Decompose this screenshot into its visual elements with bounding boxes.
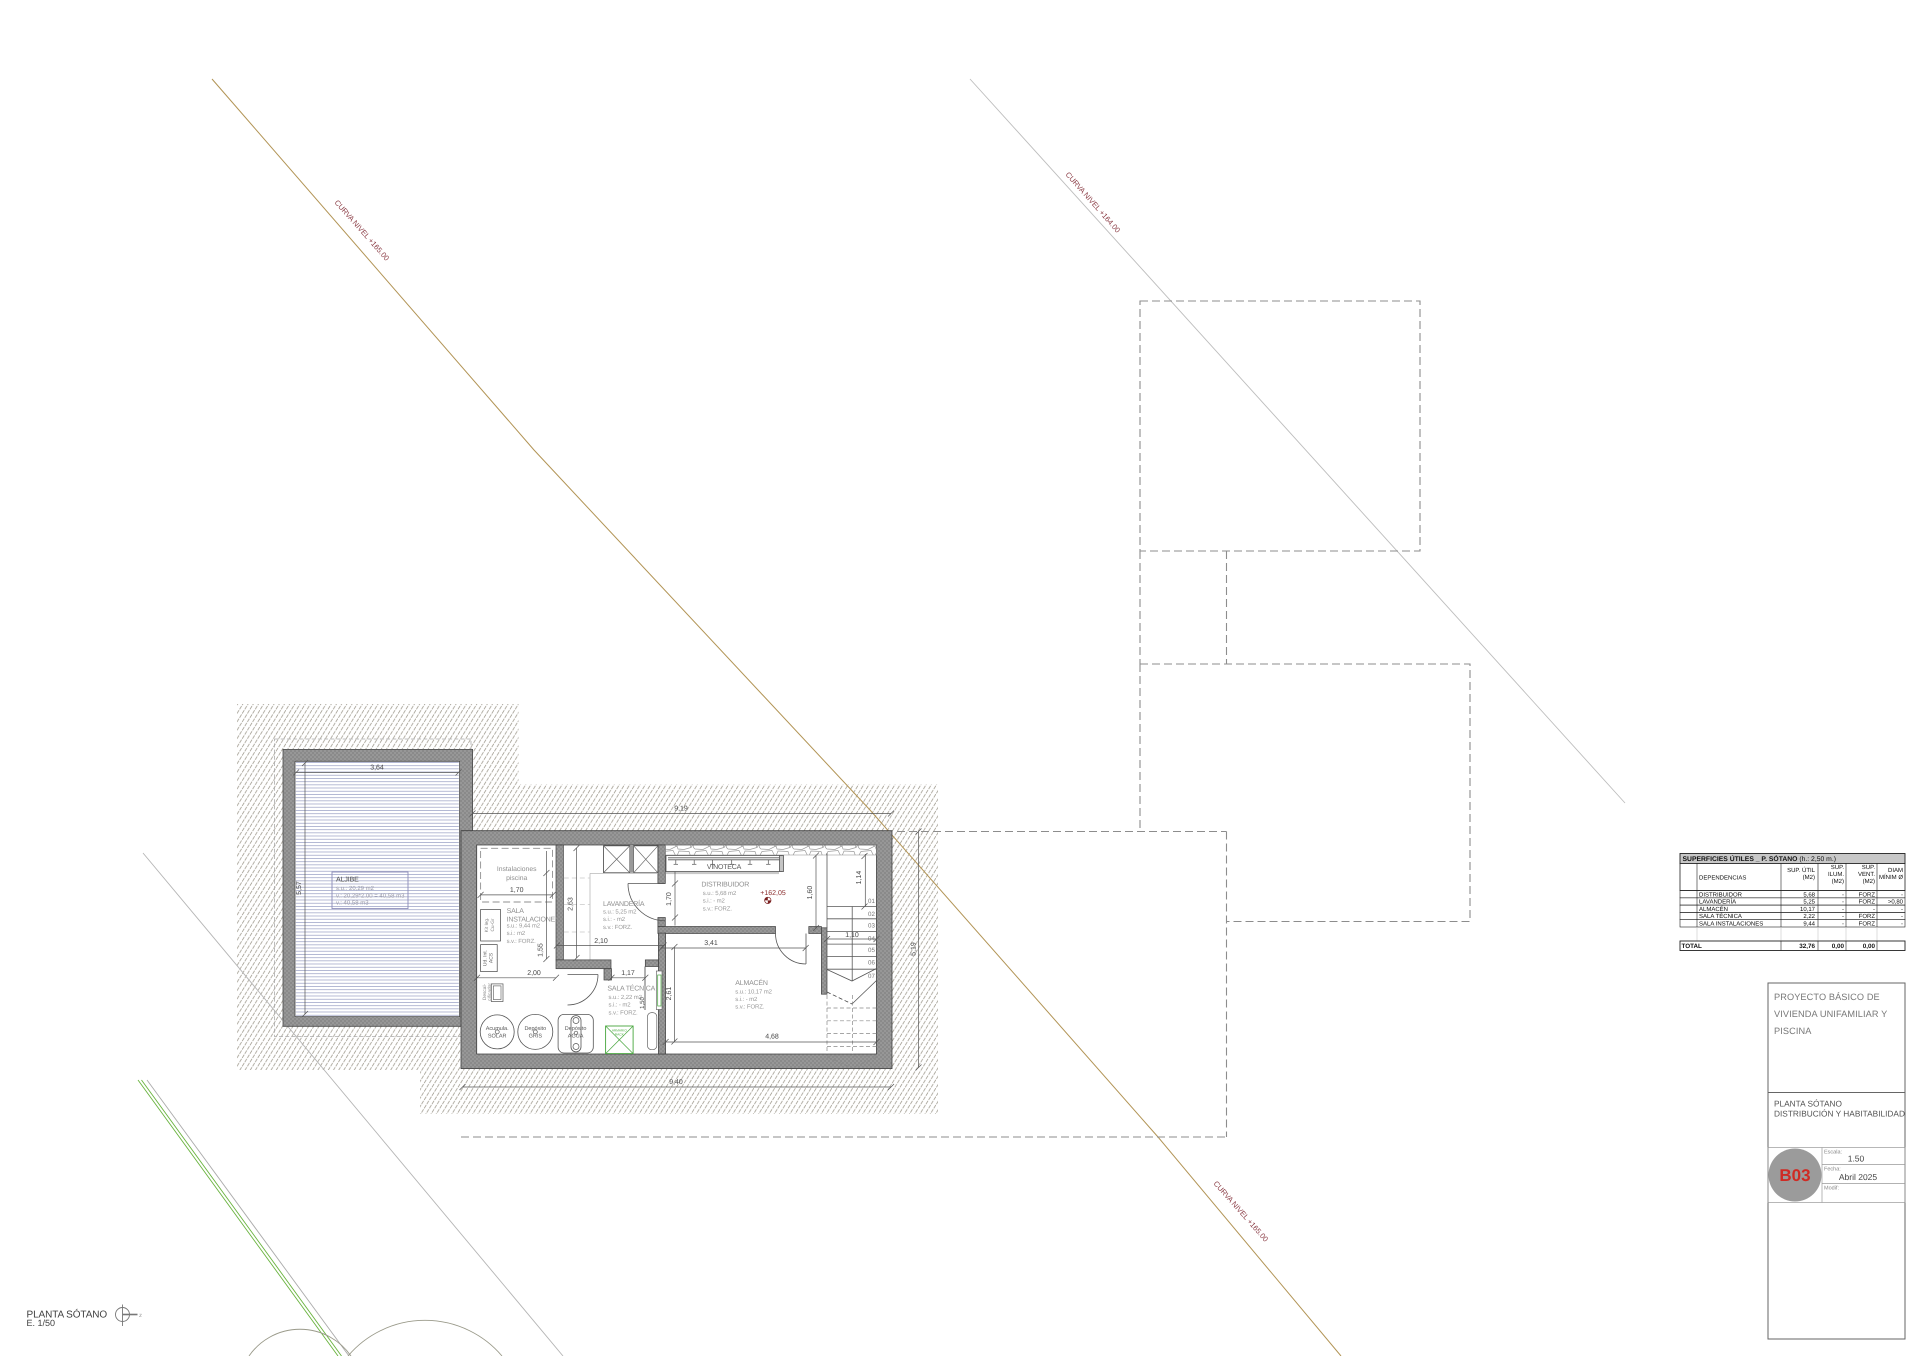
svg-text:0,00: 0,00 [1863,943,1876,950]
svg-text:-: - [1901,922,1903,928]
svg-text:B03: B03 [1779,1166,1810,1185]
svg-text:ILUM.: ILUM. [1828,871,1844,878]
svg-text:SALA TÉCNICA: SALA TÉCNICA [1699,912,1742,920]
svg-text:5,25: 5,25 [1803,899,1815,906]
svg-text:2,63: 2,63 [568,897,575,911]
svg-text:32,76: 32,76 [1799,943,1815,950]
svg-text:1,10: 1,10 [845,932,859,939]
svg-text:-: - [1842,900,1844,906]
svg-text:s.u.: 5,25 m2: s.u.: 5,25 m2 [603,909,637,916]
svg-text:1,70: 1,70 [510,887,524,894]
svg-text:VINOTECA: VINOTECA [707,864,742,871]
svg-text:3,64: 3,64 [370,765,384,772]
svg-text:+162,05: +162,05 [760,890,786,897]
svg-text:LAVANDERÍA: LAVANDERÍA [1699,898,1736,906]
svg-text:v.: 40,58 m3: v.: 40,58 m3 [336,900,369,907]
svg-text:1,14: 1,14 [856,871,863,885]
svg-text:1,60: 1,60 [807,886,814,900]
svg-text:Instalaciones: Instalaciones [497,866,537,873]
svg-text:s.v.: FORZ.: s.v.: FORZ. [735,1004,765,1011]
svg-text:9,44: 9,44 [1803,921,1815,928]
svg-text:s.i.: - m2: s.i.: - m2 [735,996,758,1003]
svg-text:4,68: 4,68 [765,1034,779,1041]
svg-text:ALJIBE: ALJIBE [336,877,359,884]
svg-text:1,55: 1,55 [538,943,545,957]
svg-text:s.u.: 20,29 m2: s.u.: 20,29 m2 [336,885,375,892]
svg-text:INSTALACIONES: INSTALACIONES [507,917,560,924]
svg-text:5,57: 5,57 [296,881,303,895]
svg-text:PLANTA SÓTANO: PLANTA SÓTANO [1774,1099,1842,1109]
svg-text:Depósito: Depósito [524,1025,546,1032]
svg-text:1,50: 1,50 [639,997,646,1009]
svg-text:PISCINA: PISCINA [1774,1026,1812,1036]
svg-text:s.u.: 5,68 m2: s.u.: 5,68 m2 [703,890,737,897]
svg-text:s.i.: - m2: s.i.: - m2 [703,898,726,905]
svg-text:SUPERFICIES ÚTILES _ P. SÓTANO: SUPERFICIES ÚTILES _ P. SÓTANO (h.: 2,50… [1683,854,1836,863]
svg-text:PROYECTO BÁSICO DE: PROYECTO BÁSICO DE [1774,992,1880,1002]
svg-text:AGUA: AGUA [568,1034,584,1040]
svg-text:DISTRIBUIDOR: DISTRIBUIDOR [701,882,749,889]
svg-text:s.u.: 10,17 m2: s.u.: 10,17 m2 [735,988,772,995]
svg-text:Acumula.: Acumula. [486,1026,509,1032]
svg-text:GRIS: GRIS [529,1034,543,1040]
svg-text:FORZ: FORZ [1859,891,1876,898]
svg-text:Cu-Gr: Cu-Gr [490,918,496,931]
svg-text:LAVANDERÍA: LAVANDERÍA [603,899,645,908]
svg-text:2,00: 2,00 [527,970,541,977]
svg-text:-: - [1901,914,1903,920]
svg-text:(M2): (M2) [1832,878,1844,885]
svg-text:SOLAR: SOLAR [488,1034,507,1040]
svg-text:VIVIENDA UNIFAMILIAR Y: VIVIENDA UNIFAMILIAR Y [1774,1009,1887,1019]
svg-text:SUP. ÚTIL: SUP. ÚTIL [1787,866,1816,874]
svg-text:-: - [1842,914,1844,920]
svg-text:1.50: 1.50 [1848,1154,1865,1164]
svg-text:2,10: 2,10 [594,938,608,945]
svg-text:>0,80: >0,80 [1888,899,1904,906]
svg-text:Escala:: Escala: [1824,1150,1843,1156]
svg-text:FORZ: FORZ [1859,899,1876,906]
svg-text:DISTRIBUIDOR: DISTRIBUIDOR [1699,891,1743,898]
svg-text:s.i.: - m2: s.i.: - m2 [609,1002,632,1009]
svg-text:s.i.: m2: s.i.: m2 [507,930,526,937]
svg-text:Modif:: Modif: [1824,1186,1839,1192]
svg-text:s.v.: FORZ.: s.v.: FORZ. [609,1009,639,1016]
svg-text:FORZ: FORZ [1859,921,1876,928]
svg-text:0,00: 0,00 [1832,943,1845,950]
svg-text:1,70: 1,70 [666,892,673,906]
svg-text:02: 02 [868,911,875,918]
svg-text:Kit leg.: Kit leg. [484,918,490,933]
svg-text:DISTRIBUCIÓN Y HABITABILIDAD: DISTRIBUCIÓN Y HABITABILIDAD [1774,1109,1905,1119]
svg-text:E. 1/50: E. 1/50 [27,1318,56,1328]
svg-text:05: 05 [868,947,875,954]
svg-text:ACS: ACS [489,952,495,963]
svg-text:07: 07 [868,973,875,980]
svg-text:9,40: 9,40 [669,1079,683,1086]
svg-text:s.v.: FORZ.: s.v.: FORZ. [703,905,733,912]
svg-text:v.: 20,29*2.00 = 40,58 m3: v.: 20,29*2.00 = 40,58 m3 [336,893,405,900]
svg-text:VENT.: VENT. [1858,871,1875,878]
svg-text:SALA INSTALACIONES: SALA INSTALACIONES [1699,921,1763,928]
svg-text:SALA TÉCNICA: SALA TÉCNICA [607,984,655,993]
svg-text:s.v.: FORZ.: s.v.: FORZ. [507,938,537,945]
svg-text:03: 03 [868,923,875,930]
svg-text:1,17: 1,17 [621,970,635,977]
svg-text:ALMACÉN: ALMACÉN [735,978,768,987]
svg-text:Depósito: Depósito [565,1025,587,1032]
svg-text:5,68: 5,68 [1803,891,1815,898]
svg-text:s.v.: FORZ.: s.v.: FORZ. [603,924,633,931]
svg-text:s.u.: 2,22 m2: s.u.: 2,22 m2 [609,994,643,1001]
svg-text:DIAM: DIAM [1888,867,1903,874]
svg-text:01: 01 [868,898,875,905]
svg-text:RACK: RACK [615,1033,625,1037]
svg-text:SALA: SALA [507,908,525,915]
svg-text:-: - [1901,892,1903,898]
svg-text:z: z [139,1313,142,1319]
svg-text:TOTAL: TOTAL [1682,943,1703,950]
svg-text:ALMACÉN: ALMACÉN [1699,905,1728,913]
svg-text:10,17: 10,17 [1800,906,1816,913]
svg-text:9,19: 9,19 [674,806,688,813]
svg-text:piscina: piscina [506,875,527,882]
svg-text:(M2): (M2) [1863,878,1875,885]
svg-text:3,41: 3,41 [704,940,718,947]
svg-text:-: - [1901,907,1903,913]
svg-text:2,61: 2,61 [666,987,673,1001]
svg-text:06: 06 [868,960,875,967]
svg-text:-: - [1842,907,1844,913]
svg-text:Abril 2025: Abril 2025 [1839,1172,1878,1182]
svg-text:MÍNIM Ø: MÍNIM Ø [1879,873,1903,881]
svg-text:s.u.: 9,44 m2: s.u.: 9,44 m2 [507,923,541,930]
svg-text:-: - [1842,892,1844,898]
svg-text:DEPENDENCIAS: DEPENDENCIAS [1699,875,1746,882]
svg-text:2,22: 2,22 [1803,913,1815,920]
svg-text:s.i.: - m2: s.i.: - m2 [603,916,626,923]
svg-text:-: - [1873,907,1875,913]
svg-text:(M2): (M2) [1803,874,1815,881]
svg-text:SUP.: SUP. [1831,864,1845,871]
svg-text:cificador: cificador [487,983,493,1001]
svg-text:SUP.: SUP. [1862,864,1876,871]
svg-text:5,19: 5,19 [911,942,918,956]
svg-text:-: - [1842,922,1844,928]
svg-text:FORZ: FORZ [1859,913,1876,920]
